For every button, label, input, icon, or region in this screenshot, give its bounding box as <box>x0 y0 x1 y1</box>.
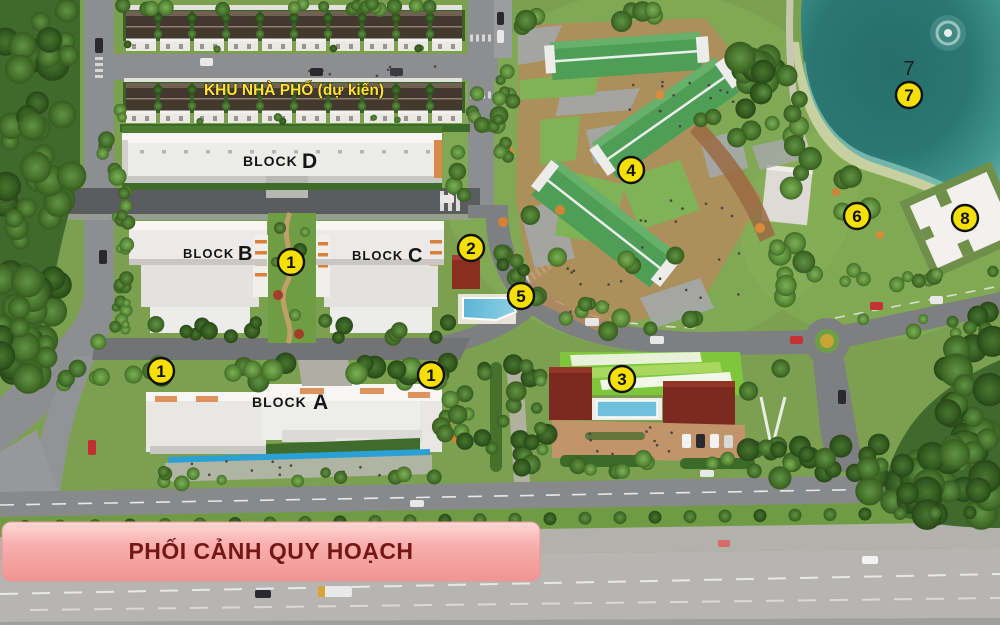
svg-text:1: 1 <box>426 366 435 385</box>
svg-text:A: A <box>313 391 328 414</box>
svg-text:B: B <box>238 243 252 265</box>
svg-text:1: 1 <box>156 362 165 381</box>
svg-text:8: 8 <box>960 209 969 228</box>
svg-text:7: 7 <box>904 86 913 105</box>
svg-text:PHỐI CẢNH QUY HOẠCH: PHỐI CẢNH QUY HOẠCH <box>128 536 413 564</box>
svg-text:1: 1 <box>286 253 295 272</box>
svg-text:BLOCK: BLOCK <box>243 153 298 169</box>
svg-text:7: 7 <box>903 58 914 80</box>
svg-text:3: 3 <box>617 370 626 389</box>
svg-text:KHU NHÀ PHỐ (dự kiến): KHU NHÀ PHỐ (dự kiến) <box>204 81 384 99</box>
svg-text:D: D <box>302 150 317 173</box>
svg-text:2: 2 <box>466 239 475 258</box>
svg-text:BLOCK: BLOCK <box>352 248 403 263</box>
svg-text:BLOCK: BLOCK <box>183 246 234 261</box>
svg-text:6: 6 <box>852 207 861 226</box>
svg-text:4: 4 <box>626 161 636 180</box>
svg-text:C: C <box>408 245 422 267</box>
svg-text:BLOCK: BLOCK <box>252 394 307 410</box>
svg-text:5: 5 <box>516 287 525 306</box>
